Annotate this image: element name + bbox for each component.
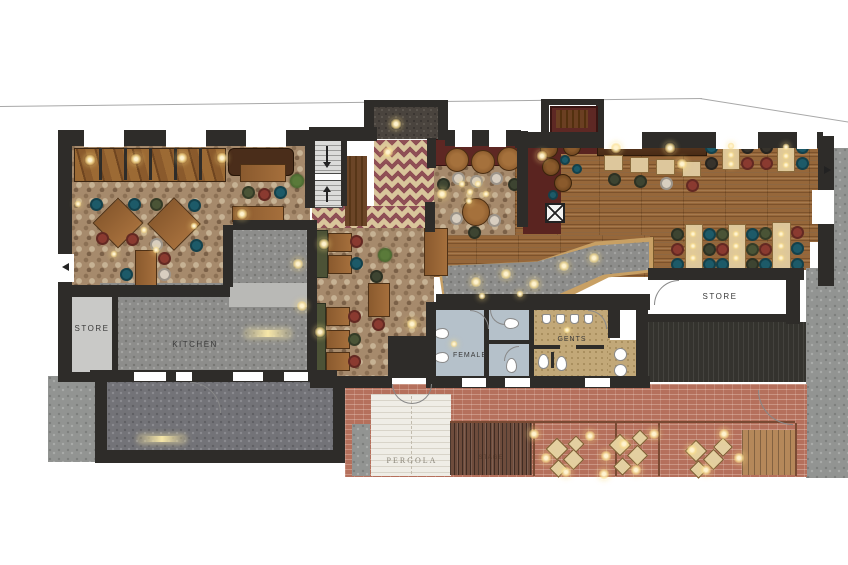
dark-timber-deck <box>648 322 806 382</box>
room-label-female: FEMALE <box>444 352 496 359</box>
booth-divider <box>174 148 177 180</box>
chair <box>759 243 772 256</box>
wood-counter <box>424 228 448 276</box>
light <box>782 152 790 160</box>
light <box>777 242 785 250</box>
light <box>470 276 482 288</box>
chair <box>716 228 729 241</box>
stage-deck <box>450 422 532 475</box>
light <box>588 252 600 264</box>
round-table <box>445 148 469 172</box>
light <box>618 438 630 450</box>
light <box>74 200 82 208</box>
toilet-icon <box>434 328 449 339</box>
light <box>630 464 642 476</box>
entrance-mat <box>556 110 588 128</box>
chair <box>686 179 699 192</box>
light <box>563 326 571 334</box>
wall <box>541 99 604 105</box>
light <box>732 242 740 250</box>
entrance-arrow-icon <box>58 263 69 271</box>
wall <box>310 376 392 388</box>
chair <box>188 199 201 212</box>
wall <box>608 302 620 338</box>
light <box>482 190 490 198</box>
chair <box>791 226 804 239</box>
light <box>176 152 188 164</box>
booth-table <box>240 164 286 182</box>
light <box>610 142 622 154</box>
stair-arrow-up <box>323 182 331 192</box>
chair <box>634 175 647 188</box>
window <box>797 129 817 149</box>
light <box>732 230 740 238</box>
light <box>516 290 524 298</box>
wall <box>307 220 317 382</box>
wall <box>364 100 374 140</box>
window <box>505 378 530 387</box>
wall <box>388 336 434 378</box>
light <box>466 188 474 196</box>
window <box>585 378 610 387</box>
chair <box>126 233 139 246</box>
light <box>782 143 790 151</box>
chair <box>350 235 363 248</box>
light <box>600 450 612 462</box>
room-label-stage: STAGE <box>462 455 520 461</box>
light <box>458 180 466 188</box>
window <box>246 127 286 147</box>
pergola-post-line <box>795 423 797 476</box>
light <box>500 268 512 280</box>
stair-landing-bench <box>345 156 367 226</box>
wall <box>305 138 315 208</box>
floor-plan-canvas: STORE KITCHEN FEMALE GENTS STORE PERGOLA… <box>0 0 848 565</box>
wall <box>576 345 604 349</box>
light <box>686 444 698 456</box>
wall <box>426 376 650 388</box>
plant <box>290 174 304 188</box>
room-label-kitchen: KITCHEN <box>160 340 230 349</box>
light <box>732 254 740 262</box>
wall <box>70 285 230 297</box>
stool <box>572 164 582 174</box>
chair <box>348 333 361 346</box>
light <box>689 242 697 250</box>
light <box>648 428 660 440</box>
plant <box>378 248 392 262</box>
chair <box>746 243 759 256</box>
booth-divider <box>124 148 127 180</box>
light <box>536 150 548 162</box>
window <box>166 127 206 147</box>
hall-table <box>630 157 649 173</box>
wall <box>488 340 532 344</box>
stair-arrow-down <box>323 162 331 172</box>
booth-divider <box>99 148 102 180</box>
chair <box>450 212 463 225</box>
pergola-beam <box>450 421 795 423</box>
terrace-pavement-wedge <box>352 424 370 476</box>
light <box>318 238 330 250</box>
chair <box>274 186 287 199</box>
light <box>584 430 596 442</box>
site-boundary-line <box>700 98 848 123</box>
light-strip <box>139 436 185 442</box>
light <box>390 118 402 130</box>
window <box>462 378 486 387</box>
light <box>474 180 482 188</box>
right-pavement <box>806 268 848 478</box>
dumbwaiter <box>545 203 565 223</box>
chair <box>158 268 171 281</box>
chair <box>90 198 103 211</box>
snug-table <box>328 233 352 252</box>
window <box>716 129 758 149</box>
chair <box>96 232 109 245</box>
door-swing <box>654 280 679 305</box>
wall <box>427 138 436 168</box>
chair <box>190 239 203 252</box>
exit-arrow-icon <box>824 166 835 174</box>
light <box>292 258 304 270</box>
chair <box>158 252 171 265</box>
chair <box>608 173 621 186</box>
window <box>284 372 308 381</box>
chair <box>350 257 363 270</box>
chair <box>150 198 163 211</box>
wall <box>333 380 345 463</box>
light <box>598 468 610 480</box>
light <box>216 152 228 164</box>
light <box>296 300 308 312</box>
light <box>718 428 730 440</box>
wall <box>648 314 800 322</box>
light <box>727 160 735 168</box>
light <box>140 226 148 234</box>
light <box>110 250 118 258</box>
urinal-icon <box>542 314 551 324</box>
chair <box>759 227 772 240</box>
right-pavement <box>834 148 848 270</box>
chair <box>716 243 729 256</box>
service-corridor-floor <box>229 225 307 285</box>
wall <box>434 376 448 388</box>
urinal-icon <box>570 314 579 324</box>
chair <box>258 188 271 201</box>
window <box>812 190 834 224</box>
hall-table <box>604 155 623 171</box>
booth-divider <box>149 148 152 180</box>
light <box>382 146 394 158</box>
toilet-icon <box>556 356 567 371</box>
chair <box>468 226 481 239</box>
light <box>450 340 458 348</box>
light <box>777 230 785 238</box>
light <box>540 452 552 464</box>
wall <box>112 287 118 372</box>
window <box>455 128 472 147</box>
chair <box>488 214 501 227</box>
room-label-store-left: STORE <box>72 324 112 333</box>
hall-table <box>656 159 675 175</box>
wall <box>223 225 233 287</box>
chair <box>741 157 754 170</box>
light <box>152 246 160 254</box>
wall <box>364 100 448 107</box>
booth-divider <box>199 148 202 180</box>
wall <box>341 138 347 206</box>
light <box>190 222 198 230</box>
wall <box>58 282 72 382</box>
wall <box>233 220 309 230</box>
room-label-gents: GENTS <box>546 336 598 343</box>
stool <box>560 155 570 165</box>
wall <box>95 450 345 463</box>
light <box>689 230 697 238</box>
terrace-deck-tile <box>742 430 795 475</box>
light <box>727 151 735 159</box>
stool <box>548 190 558 200</box>
dining-table <box>135 250 157 286</box>
light <box>528 428 540 440</box>
light <box>777 254 785 262</box>
chair <box>703 243 716 256</box>
wall <box>551 352 554 368</box>
chair <box>120 268 133 281</box>
snug-table <box>326 307 350 326</box>
barrel-table <box>554 174 572 192</box>
light <box>478 292 486 300</box>
light <box>436 188 448 200</box>
light <box>782 161 790 169</box>
window <box>489 128 506 147</box>
chair <box>128 198 141 211</box>
dining-table <box>368 283 390 317</box>
light <box>314 326 326 338</box>
wall <box>648 268 804 280</box>
light <box>689 254 697 262</box>
chair <box>703 228 716 241</box>
light <box>465 197 473 205</box>
chair <box>372 318 385 331</box>
light <box>84 154 96 166</box>
chair <box>348 355 361 368</box>
snug-table <box>326 352 350 371</box>
wall <box>425 202 435 232</box>
toilet-icon <box>538 354 549 369</box>
chair <box>490 172 503 185</box>
window <box>233 372 263 381</box>
light <box>236 208 248 220</box>
chair <box>242 186 255 199</box>
light <box>664 142 676 154</box>
window <box>84 127 124 147</box>
chair <box>348 310 361 323</box>
wall <box>58 130 72 254</box>
light-strip <box>246 330 290 337</box>
chair <box>791 242 804 255</box>
round-table <box>471 150 495 174</box>
wall <box>534 345 560 349</box>
wall <box>818 136 834 190</box>
room-label-store-right: STORE <box>696 292 744 301</box>
sink-icon <box>614 348 627 361</box>
light <box>700 464 712 476</box>
chair <box>705 157 718 170</box>
chair <box>746 228 759 241</box>
urinal-icon <box>556 314 565 324</box>
light <box>727 142 735 150</box>
snug-table <box>326 330 350 349</box>
room-label-pergola: PERGOLA <box>382 456 442 465</box>
light <box>560 466 572 478</box>
light <box>733 452 745 464</box>
snug-table <box>328 255 352 274</box>
chair <box>660 177 673 190</box>
chair <box>671 243 684 256</box>
light <box>406 318 418 330</box>
light <box>130 153 142 165</box>
light <box>528 278 540 290</box>
chevron-rug <box>312 206 434 228</box>
light <box>558 260 570 272</box>
chair <box>760 157 773 170</box>
chair <box>796 157 809 170</box>
wall <box>818 224 834 286</box>
light <box>676 158 688 170</box>
window <box>176 372 192 381</box>
window <box>134 372 166 381</box>
wall <box>636 302 648 386</box>
chair <box>370 270 383 283</box>
porch-floor <box>370 105 442 139</box>
chair <box>671 228 684 241</box>
